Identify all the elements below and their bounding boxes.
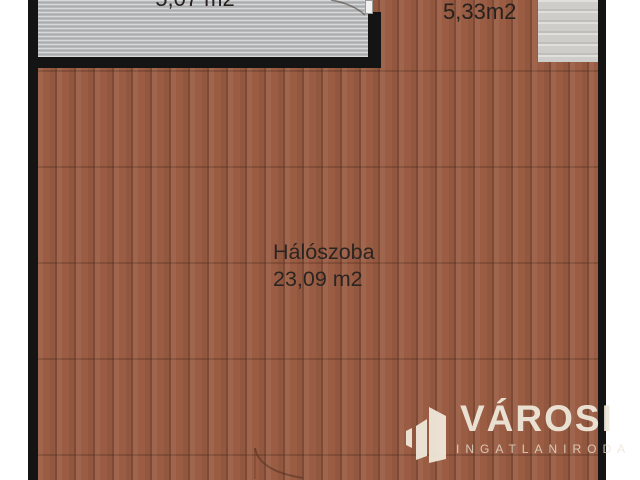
- door-leaf-top: [365, 0, 373, 14]
- staircase: [538, 0, 598, 62]
- bedroom-name: Hálószoba: [273, 239, 375, 266]
- bedroom-label: Hálószoba 23,09 m2: [273, 239, 375, 293]
- floorplan-canvas: 5,07 m2 5,33m2 Hálószoba 23,09 m2 VÁROSI…: [0, 0, 640, 480]
- watermark-brand: VÁROSI: [460, 398, 614, 440]
- wall-upper-room-right: [368, 12, 381, 68]
- wall-upper-room-bottom: [28, 57, 381, 68]
- upper-left-room-area-label: 5,07 m2: [145, 0, 245, 11]
- bedroom-area: 23,09 m2: [273, 266, 375, 293]
- watermark-subtitle: INGATLANIRODA: [456, 442, 631, 456]
- wall-left: [28, 0, 38, 480]
- agency-watermark: VÁROSI INGATLANIRODA: [403, 395, 640, 467]
- upper-right-area-label: 5,33m2: [443, 0, 516, 24]
- buildings-icon: [403, 397, 453, 465]
